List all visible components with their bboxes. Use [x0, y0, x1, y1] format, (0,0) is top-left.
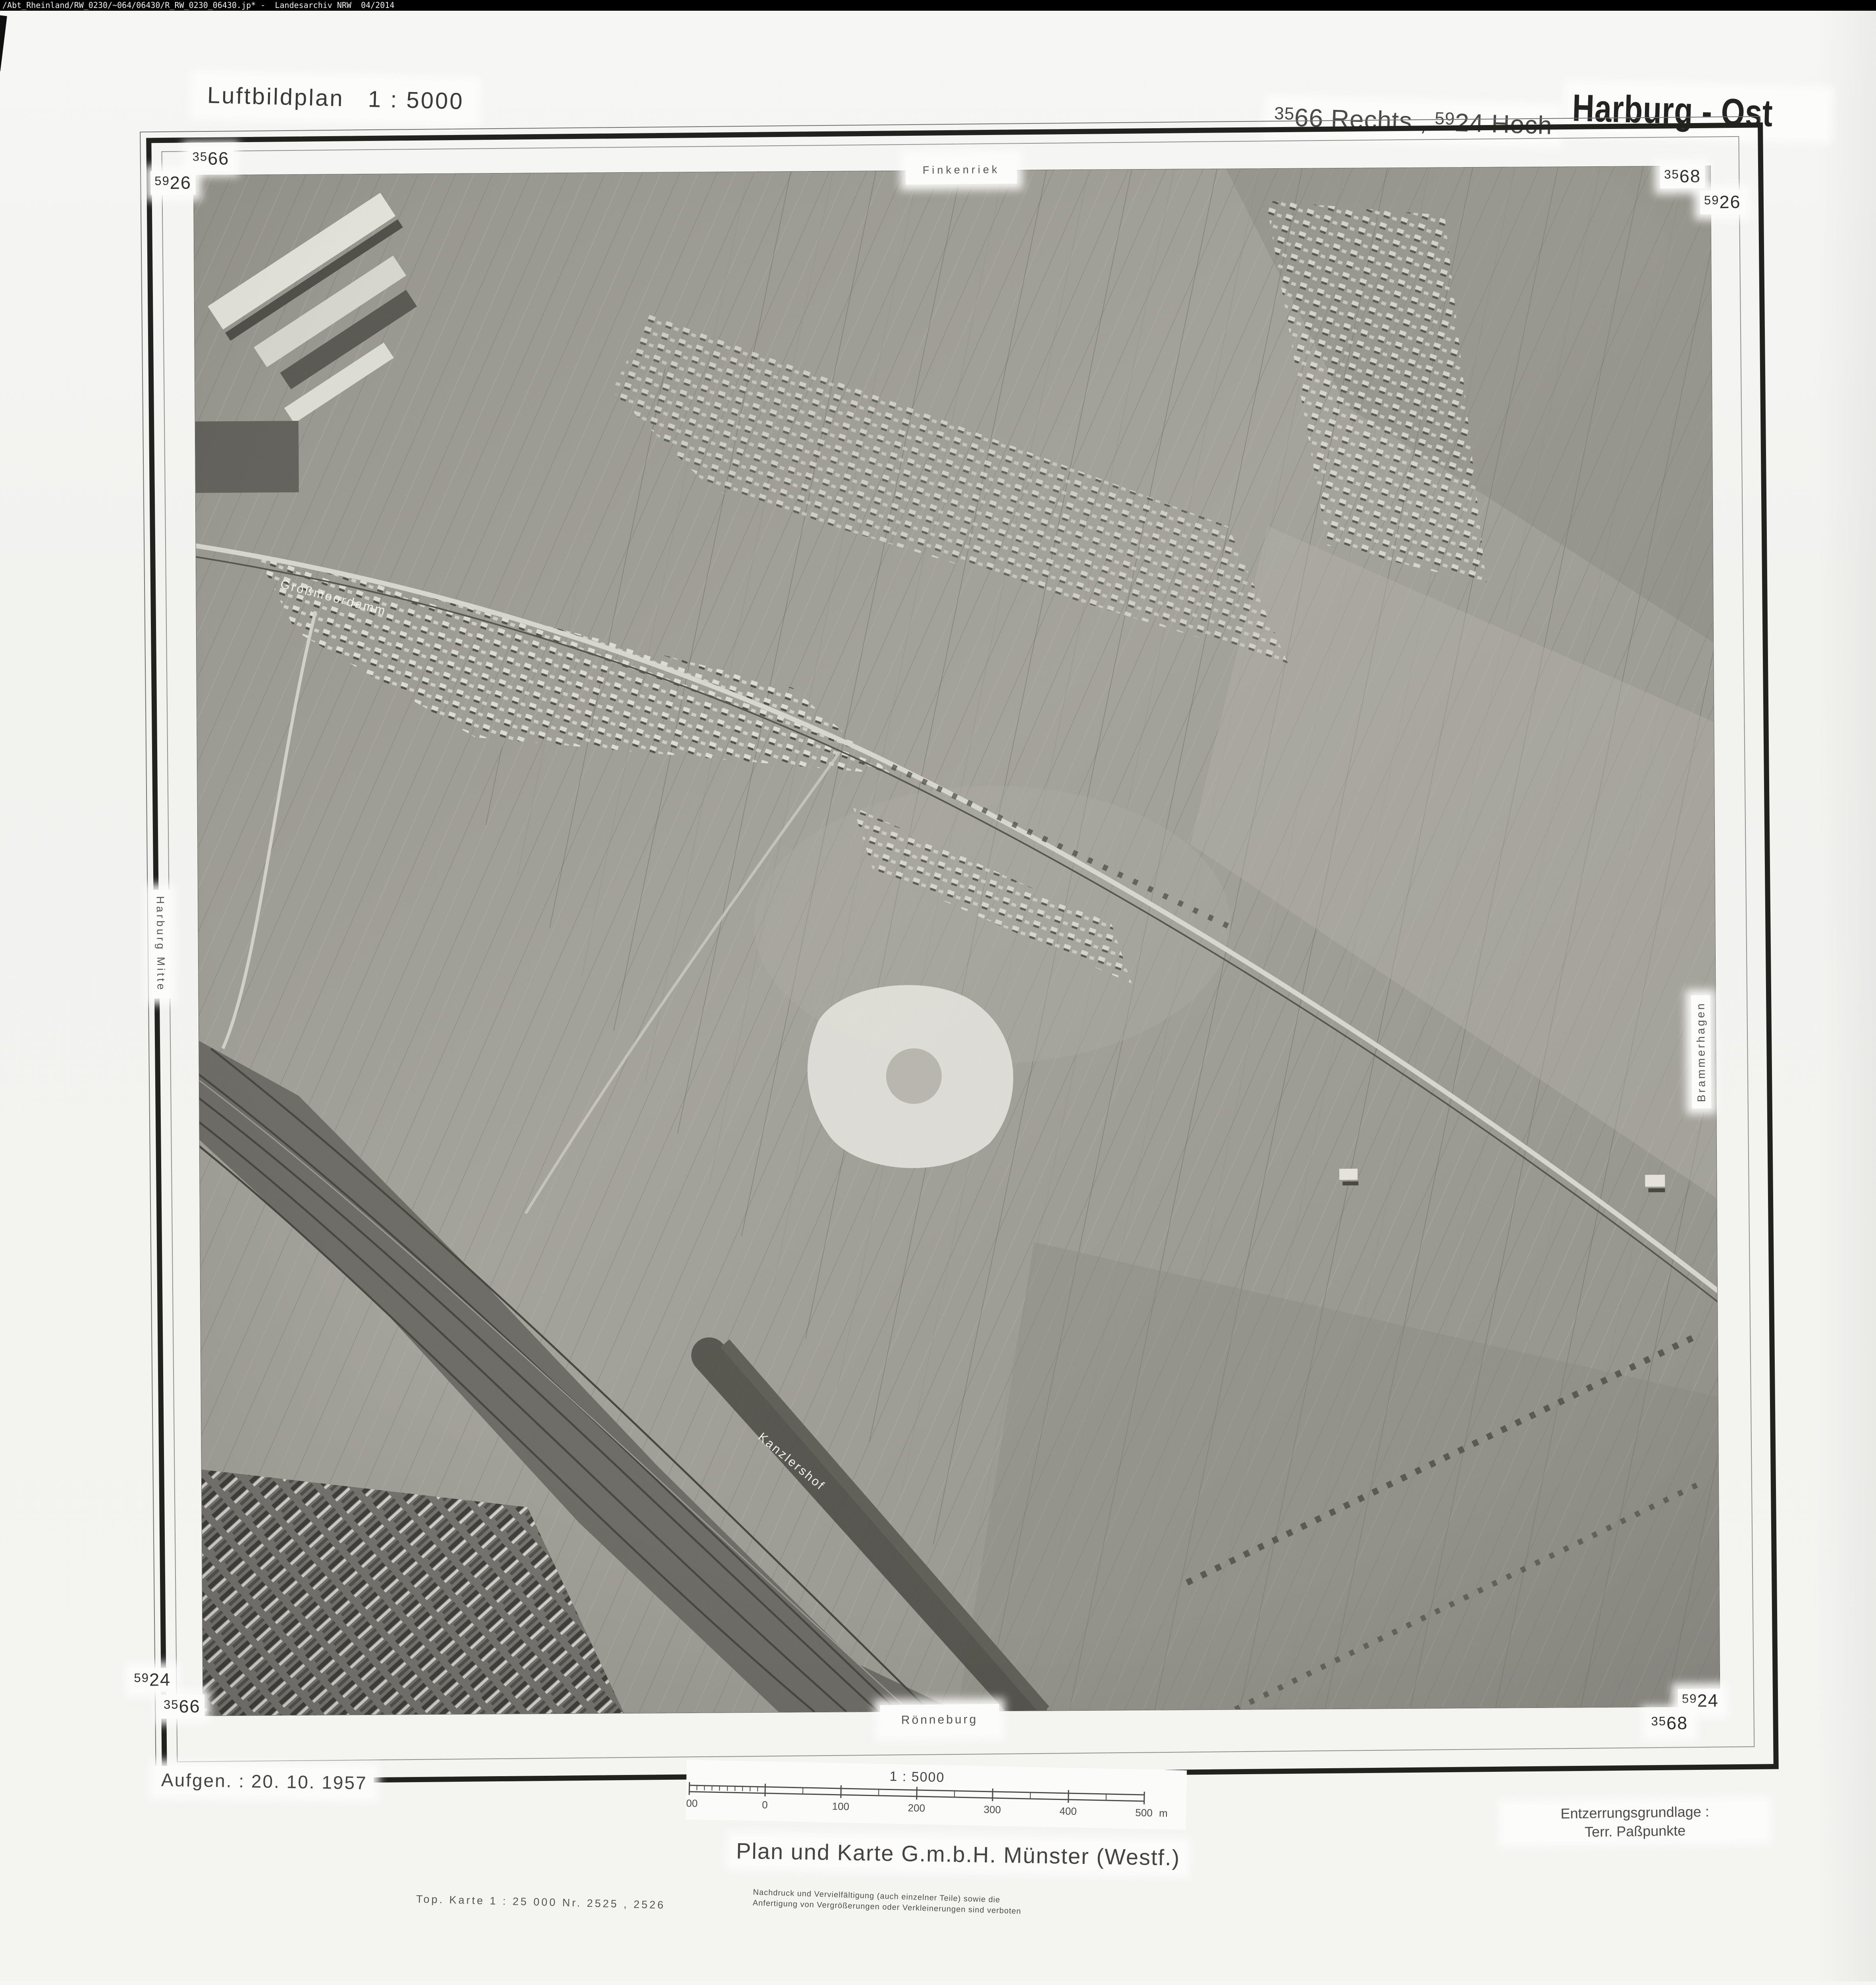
tick-label: 300 [983, 1804, 1001, 1816]
coord-small: 59 [134, 1671, 149, 1685]
coord-big: 68 [1679, 166, 1701, 187]
coord-top-left-rechts: 3566 [188, 146, 233, 171]
coord-big: 26 [1719, 192, 1741, 212]
tick-label: 0 [762, 1799, 768, 1811]
coord-small: 35 [164, 1698, 179, 1711]
coord-top-right-rechts: 3568 [1660, 164, 1705, 189]
coord-small: 35 [1651, 1714, 1666, 1728]
tick-label: 400 [1059, 1805, 1077, 1817]
coord-bottom-left-rechts: 3566 [160, 1694, 204, 1719]
tick-label: 100 [832, 1800, 849, 1813]
capture-date: Aufgen. : 20. 10. 1957 [154, 1766, 374, 1797]
coord-small: 59 [154, 174, 170, 188]
coord-small: 59 [1704, 193, 1720, 207]
coord-small: 59 [1682, 1692, 1697, 1706]
coord-big: 26 [170, 172, 192, 193]
coord-big: 24 [1697, 1690, 1719, 1711]
scale-bar: 1 : 5000 100 0 100 200 300 [686, 1760, 1187, 1830]
aerial-photo-graphic: Großmoordamm Kanzlershof [194, 166, 1720, 1715]
tick-label: 500 [1135, 1807, 1153, 1819]
adjoining-sheet-north: Finkenriek [906, 155, 1017, 185]
coord-top-left-hoch: 5926 [150, 171, 195, 195]
rectification-value: Terr. Paßpunkte [1504, 1820, 1766, 1842]
scale-bar-graphic: 1 : 5000 100 0 100 200 300 [686, 1760, 1187, 1830]
adjoining-sheet-west: Harburg Mitte [150, 890, 170, 998]
scanned-map-sheet: { "archive_bar": { "text": "/Abt_Rheinla… [0, 0, 1876, 1981]
coord-big: 68 [1666, 1713, 1688, 1733]
aerial-photo: Großmoordamm Kanzlershof [194, 166, 1720, 1715]
coord-bottom-right-hoch: 5924 [1678, 1688, 1723, 1713]
tick-label: 100 [686, 1797, 698, 1810]
adjoining-sheet-east: Brammerhagen [1691, 995, 1711, 1108]
tick-label: 200 [908, 1802, 925, 1814]
coord-top-right-hoch: 5926 [1700, 190, 1745, 214]
coord-big: 24 [149, 1669, 171, 1690]
coord-big: 66 [179, 1696, 201, 1717]
coord-big: 66 [208, 148, 229, 169]
scale-bar-title: 1 : 5000 [889, 1769, 945, 1785]
coord-bottom-left-hoch: 5924 [130, 1668, 175, 1692]
coord-small: 35 [1664, 167, 1679, 181]
scale-unit: m [1159, 1807, 1168, 1819]
rectification-note: Entzerrungsgrundlage : Terr. Paßpunkte [1504, 1801, 1766, 1842]
coord-small: 35 [192, 150, 208, 164]
map-block: Großmoordamm Kanzlershof 3566 5926 3568 … [0, 0, 1876, 1985]
adjoining-sheet-south: Rönneburg [880, 1704, 999, 1736]
vignette [194, 166, 1720, 1715]
coord-bottom-right-rechts: 3568 [1647, 1711, 1692, 1735]
